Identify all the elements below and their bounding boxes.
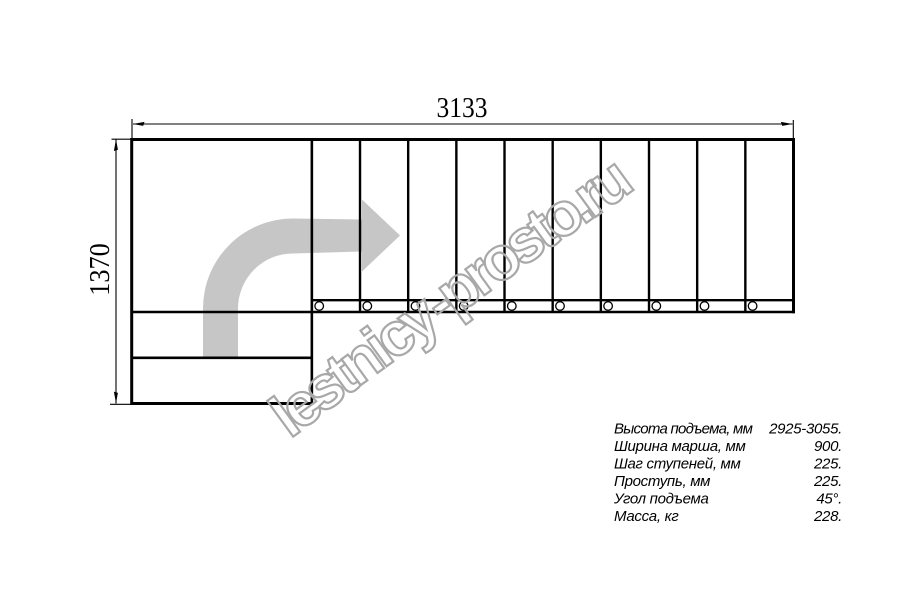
svg-text:1370: 1370 [84, 243, 116, 296]
svg-text:3133: 3133 [437, 92, 488, 124]
svg-text:225.: 225. [813, 456, 842, 473]
svg-text:Масса, кг: Масса, кг [614, 508, 679, 525]
svg-text:225.: 225. [813, 473, 842, 490]
svg-text:Высота подъема, мм: Высота подъема, мм [614, 421, 753, 438]
svg-text:228.: 228. [813, 508, 842, 525]
svg-text:Угол подъема: Угол подъема [613, 491, 709, 508]
svg-text:2925-3055.: 2925-3055. [768, 421, 842, 438]
svg-text:Проступь, мм: Проступь, мм [614, 473, 710, 490]
svg-text:Ширина марша, мм: Ширина марша, мм [614, 438, 745, 455]
svg-text:Шаг ступеней, мм: Шаг ступеней, мм [614, 456, 741, 473]
svg-text:lestnicy-prosto.ru: lestnicy-prosto.ru [256, 143, 641, 450]
svg-text:45°.: 45°. [816, 491, 842, 508]
svg-text:900.: 900. [814, 438, 842, 455]
